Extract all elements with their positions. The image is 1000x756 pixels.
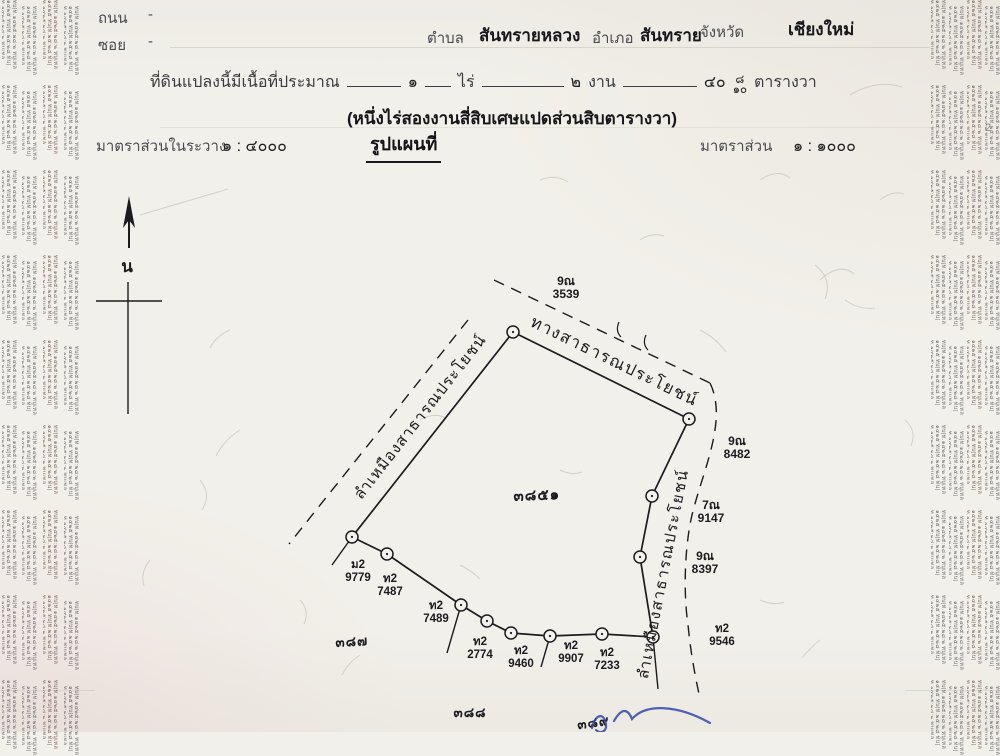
security-microtext-block: ทบ|ท.๑๔๒๕:๒๘:๒ ทบูเทล ๑๔๒๕ ทบ|ท.๒๕:๒๘ ทบ…	[949, 516, 964, 586]
security-microtext-block: ทบ|ท.๑๔๒๕:๒๘:๒ ทบูเทล ๑๔๒๕ ทบ|ท.๒๕:๒๘ ทบ…	[64, 176, 79, 246]
security-microtext-block: ทบ|ท.๑๔๒๕:๒๘:๒ ทบูเทล ๑๔๒๕ ทบ|ท.๒๕:๒๘ ทบ…	[931, 170, 946, 240]
survey-point-number: 7489	[423, 613, 449, 625]
boundary-spur	[447, 605, 461, 653]
neighbor-point-code: 7ณ	[702, 498, 720, 512]
security-microtext-block: ทบ|ท.๑๔๒๕:๒๘:๒ ทบูเทล ๑๔๒๕ ทบ|ท.๒๕:๒๘ ทบ…	[985, 516, 1000, 586]
neighbor-point-number: 8397	[692, 562, 719, 576]
security-microtext-block: ทบ|ท.๑๔๒๕:๒๘:๒ ทบูเทล ๑๔๒๕ ทบ|ท.๒๕:๒๘ ทบ…	[967, 595, 982, 665]
survey-marker	[647, 631, 659, 643]
survey-marker-dot	[651, 495, 653, 497]
security-microtext-block: ทบ|ท.๑๔๒๕:๒๘:๒ ทบูเทล ๑๔๒๕ ทบ|ท.๒๕:๒๘ ทบ…	[949, 431, 964, 501]
scan-noise	[420, 415, 446, 420]
survey-point-code: ท2	[600, 647, 614, 659]
survey-point-code: ท2	[715, 623, 729, 635]
security-microtext-block: ทบ|ท.๑๔๒๕:๒๘:๒ ทบูเทล ๑๔๒๕ ทบ|ท.๒๕:๒๘ ทบ…	[64, 346, 79, 416]
security-microtext-block: ทบ|ท.๑๔๒๕:๒๘:๒ ทบูเทล ๑๔๒๕ ทบ|ท.๒๕:๒๘ ทบ…	[967, 425, 982, 495]
security-microtext-block: ทบ|ท.๑๔๒๕:๒๘:๒ ทบูเทล ๑๔๒๕ ทบ|ท.๒๕:๒๘ ทบ…	[931, 510, 946, 580]
pen-mark	[592, 716, 606, 732]
sheet-scale-label: มาตราส่วนในระวาง	[96, 134, 226, 158]
scan-noise	[216, 430, 240, 456]
security-microtext-block: ทบ|ท.๑๔๒๕:๒๘:๒ ทบูเทล ๑๔๒๕ ทบ|ท.๒๕:๒๘ ทบ…	[949, 6, 964, 76]
survey-point-number: 9779	[345, 572, 371, 584]
scan-noise	[560, 470, 582, 474]
road-value: -	[148, 6, 153, 23]
dashed-boundary	[494, 280, 710, 383]
map-title: รูปแผนที่	[366, 129, 441, 163]
neighbor-parcel-number: ๓๘๗	[335, 633, 369, 650]
security-microtext-block: ทบ|ท.๑๔๒๕:๒๘:๒ ทบูเทล ๑๔๒๕ ทบ|ท.๒๕:๒๘ ทบ…	[967, 170, 982, 240]
street-name-label: ลำเหมืองสาธารณประโยชน์	[350, 331, 490, 503]
neighbor-parcel-number: ๓๘๘	[453, 705, 486, 720]
security-microtext-block: ทบ|ท.๑๔๒๕:๒๘:๒ ทบูเทล ๑๔๒๕ ทบ|ท.๒๕:๒๘ ทบ…	[967, 255, 982, 325]
security-microtext-column: ทบ|ท.๑๔๒๕:๒๘:๒ ทบูเทล ๑๔๒๕ ทบ|ท.๒๕:๒๘ ทบ…	[2, 0, 17, 750]
area-dash	[623, 86, 697, 87]
security-microtext-block: ทบ|ท.๑๔๒๕:๒๘:๒ ทบูเทล ๑๔๒๕ ทบ|ท.๒๕:๒๘ ทบ…	[967, 340, 982, 410]
security-microtext-block: ทบ|ท.๑๔๒๕:๒๘:๒ ทบูเทล ๑๔๒๕ ทบ|ท.๒๕:๒๘ ทบ…	[931, 595, 946, 665]
security-microtext-block: ทบ|ท.๑๔๒๕:๒๘:๒ ทบูเทล ๑๔๒๕ ทบ|ท.๒๕:๒๘ ทบ…	[22, 6, 37, 76]
neighbor-point-code: 9ณ	[696, 549, 714, 563]
boundary-spur	[653, 637, 658, 689]
area-ngan: ๒	[571, 70, 582, 95]
scan-noise	[760, 600, 784, 604]
security-microtext-column: ทบ|ท.๑๔๒๕:๒๘:๒ ทบูเทล ๑๔๒๕ ทบ|ท.๒๕:๒๘ ทบ…	[64, 6, 79, 756]
security-microtext-block: ทบ|ท.๑๔๒๕:๒๘:๒ ทบูเทล ๑๔๒๕ ทบ|ท.๒๕:๒๘ ทบ…	[2, 170, 17, 240]
survey-marker-dot	[688, 418, 690, 420]
boundary-tick	[617, 322, 621, 337]
dashed-boundary	[685, 383, 716, 694]
security-microtext-block: ทบ|ท.๑๔๒๕:๒๘:๒ ทบูเทล ๑๔๒๕ ทบ|ท.๒๕:๒๘ ทบ…	[43, 85, 58, 155]
tambon-value: สันทรายหลวง	[479, 22, 580, 49]
scan-noise	[640, 235, 664, 240]
survey-marker	[683, 413, 695, 425]
survey-marker	[346, 531, 358, 543]
security-microtext-block: ทบ|ท.๑๔๒๕:๒๘:๒ ทบูเทล ๑๔๒๕ ทบ|ท.๒๕:๒๘ ทบ…	[2, 340, 17, 410]
tambon-label: ตำบล	[427, 26, 464, 50]
north-arrow-head	[123, 196, 135, 228]
neighbor-point-code: 9ณ	[728, 434, 746, 448]
survey-point-number: 9907	[558, 653, 584, 665]
security-microtext-block: ทบ|ท.๑๔๒๕:๒๘:๒ ทบูเทล ๑๔๒๕ ทบ|ท.๒๕:๒๘ ทบ…	[22, 176, 37, 246]
security-microtext-column: ทบ|ท.๑๔๒๕:๒๘:๒ ทบูเทล ๑๔๒๕ ทบ|ท.๒๕:๒๘ ทบ…	[931, 0, 946, 750]
dashed-boundary	[289, 320, 468, 544]
scan-noise	[140, 189, 228, 215]
parcel-number: ๓๘๕๑	[513, 486, 560, 505]
area-rai: ๑	[408, 70, 418, 95]
security-microtext-block: ทบ|ท.๑๔๒๕:๒๘:๒ ทบูเทล ๑๔๒๕ ทบ|ท.๒๕:๒๘ ทบ…	[43, 595, 58, 665]
area-wa: ๔๐	[704, 70, 726, 95]
neighbor-point-number: 3539	[553, 287, 580, 301]
survey-point-number: 2774	[467, 649, 493, 661]
road-label: ถนน	[98, 6, 128, 30]
soi-value: -	[148, 33, 153, 50]
scan-noise	[850, 84, 902, 95]
survey-marker-dot	[510, 632, 512, 634]
survey-marker	[505, 627, 517, 639]
survey-point-code: ท2	[383, 573, 397, 585]
security-microtext-block: ทบ|ท.๑๔๒๕:๒๘:๒ ทบูเทล ๑๔๒๕ ทบ|ท.๒๕:๒๘ ทบ…	[22, 686, 37, 756]
scan-noise	[700, 330, 726, 352]
survey-point-code: ท2	[514, 645, 528, 657]
security-microtext-block: ทบ|ท.๑๔๒๕:๒๘:๒ ทบูเทล ๑๔๒๕ ทบ|ท.๒๕:๒๘ ทบ…	[949, 686, 964, 756]
survey-point-number: 7233	[594, 660, 620, 672]
security-microtext-block: ทบ|ท.๑๔๒๕:๒๘:๒ ทบูเทล ๑๔๒๕ ทบ|ท.๒๕:๒๘ ทบ…	[2, 510, 17, 580]
survey-marker-dot	[549, 635, 551, 637]
survey-marker-dot	[639, 556, 641, 558]
survey-marker	[646, 490, 658, 502]
security-microtext-block: ทบ|ท.๑๔๒๕:๒๘:๒ ทบูเทล ๑๔๒๕ ทบ|ท.๒๕:๒๘ ทบ…	[2, 0, 17, 70]
security-microtext-block: ทบ|ท.๑๔๒๕:๒๘:๒ ทบูเทล ๑๔๒๕ ทบ|ท.๒๕:๒๘ ทบ…	[985, 261, 1000, 331]
security-microtext-block: ทบ|ท.๑๔๒๕:๒๘:๒ ทบูเทล ๑๔๒๕ ทบ|ท.๒๕:๒๘ ทบ…	[22, 601, 37, 671]
scan-noise	[342, 655, 360, 675]
rai-label: ไร่	[458, 70, 475, 95]
survey-marker-dot	[512, 331, 514, 333]
security-microtext-block: ทบ|ท.๑๔๒๕:๒๘:๒ ทบูเทล ๑๔๒๕ ทบ|ท.๒๕:๒๘ ทบ…	[43, 425, 58, 495]
security-microtext-block: ทบ|ท.๑๔๒๕:๒๘:๒ ทบูเทล ๑๔๒๕ ทบ|ท.๒๕:๒๘ ทบ…	[2, 595, 17, 665]
pen-mark	[614, 708, 710, 723]
survey-marker-dot	[386, 553, 388, 555]
survey-point-number: 9460	[508, 658, 534, 670]
scan-noise	[540, 177, 568, 182]
security-microtext-block: ทบ|ท.๑๔๒๕:๒๘:๒ ทบูเทล ๑๔๒๕ ทบ|ท.๒๕:๒๘ ทบ…	[2, 680, 17, 750]
security-microtext-block: ทบ|ท.๑๔๒๕:๒๘:๒ ทบูเทล ๑๔๒๕ ทบ|ท.๒๕:๒๘ ทบ…	[22, 431, 37, 501]
security-microtext-block: ทบ|ท.๑๔๒๕:๒๘:๒ ทบูเทล ๑๔๒๕ ทบ|ท.๒๕:๒๘ ทบ…	[931, 425, 946, 495]
street-name-label: ลำเหมืองสาธารณประโยชน์	[634, 468, 692, 681]
wa-label: ตารางวา	[754, 70, 817, 95]
security-microtext-column: ทบ|ท.๑๔๒๕:๒๘:๒ ทบูเทล ๑๔๒๕ ทบ|ท.๒๕:๒๘ ทบ…	[949, 6, 964, 756]
survey-marker-dot	[652, 636, 654, 638]
area-dash	[347, 86, 401, 87]
survey-marker	[507, 326, 519, 338]
sheet-scale-value: ๑ : ๔๐๐๐	[222, 134, 287, 159]
security-microtext-block: ทบ|ท.๑๔๒๕:๒๘:๒ ทบูเทล ๑๔๒๕ ทบ|ท.๒๕:๒๘ ทบ…	[931, 255, 946, 325]
page-mark: 2	[985, 122, 991, 134]
soi-label: ซอย	[98, 33, 126, 57]
security-microtext-block: ทบ|ท.๑๔๒๕:๒๘:๒ ทบูเทล ๑๔๒๕ ทบ|ท.๒๕:๒๘ ทบ…	[949, 601, 964, 671]
area-dash	[425, 86, 451, 87]
security-microtext-block: ทบ|ท.๑๔๒๕:๒๘:๒ ทบูเทล ๑๔๒๕ ทบ|ท.๒๕:๒๘ ทบ…	[64, 261, 79, 331]
area-prefix: ที่ดินแปลงนี้มีเนื้อที่ประมาณ	[150, 70, 340, 95]
survey-point-code: ม2	[351, 559, 365, 571]
neighbor-point-code: 9ณ	[557, 274, 575, 288]
parcel-boundary	[352, 332, 689, 637]
province-label: จังหวัด	[700, 20, 744, 44]
security-microtext-block: ทบ|ท.๑๔๒๕:๒๘:๒ ทบูเทล ๑๔๒๕ ทบ|ท.๒๕:๒๘ ทบ…	[2, 85, 17, 155]
area-line: ที่ดินแปลงนี้มีเนื้อที่ประมาณ ๑ ไร่ ๒ งา…	[150, 70, 817, 99]
scan-noise	[760, 173, 790, 180]
province-value: เชียงใหม่	[788, 16, 854, 43]
security-microtext-block: ทบ|ท.๑๔๒๕:๒๘:๒ ทบูเทล ๑๔๒๕ ทบ|ท.๒๕:๒๘ ทบ…	[43, 510, 58, 580]
scan-noise	[210, 330, 230, 348]
security-microtext-block: ทบ|ท.๑๔๒๕:๒๘:๒ ทบูเทล ๑๔๒๕ ทบ|ท.๒๕:๒๘ ทบ…	[949, 261, 964, 331]
amphoe-label: อำเภอ	[592, 26, 633, 50]
area-wa-fraction: ๘ ๑๐	[733, 75, 747, 95]
survey-point-number: 7487	[377, 586, 403, 598]
neighbor-parcel-number: ๓๘๙	[576, 713, 610, 732]
security-microtext-block: ทบ|ท.๑๔๒๕:๒๘:๒ ทบูเทล ๑๔๒๕ ทบ|ท.๒๕:๒๘ ทบ…	[931, 340, 946, 410]
security-microtext-block: ทบ|ท.๑๔๒๕:๒๘:๒ ทบูเทล ๑๔๒๕ ทบ|ท.๒๕:๒๘ ทบ…	[64, 601, 79, 671]
security-microtext-block: ทบ|ท.๑๔๒๕:๒๘:๒ ทบูเทล ๑๔๒๕ ทบ|ท.๒๕:๒๘ ทบ…	[64, 6, 79, 76]
security-microtext-block: ทบ|ท.๑๔๒๕:๒๘:๒ ทบูเทล ๑๔๒๕ ทบ|ท.๒๕:๒๘ ทบ…	[2, 255, 17, 325]
survey-marker	[596, 628, 608, 640]
security-microtext-block: ทบ|ท.๑๔๒๕:๒๘:๒ ทบูเทล ๑๔๒๕ ทบ|ท.๒๕:๒๘ ทบ…	[64, 516, 79, 586]
security-microtext-block: ทบ|ท.๑๔๒๕:๒๘:๒ ทบูเทล ๑๔๒๕ ทบ|ท.๒๕:๒๘ ทบ…	[985, 431, 1000, 501]
security-microtext-block: ทบ|ท.๑๔๒๕:๒๘:๒ ทบูเทล ๑๔๒๕ ทบ|ท.๒๕:๒๘ ทบ…	[2, 425, 17, 495]
street-name-label: ทางสาธารณประโยชน์	[527, 312, 701, 410]
security-microtext-block: ทบ|ท.๑๔๒๕:๒๘:๒ ทบูเทล ๑๔๒๕ ทบ|ท.๒๕:๒๘ ทบ…	[43, 255, 58, 325]
security-microtext-block: ทบ|ท.๑๔๒๕:๒๘:๒ ทบูเทล ๑๔๒๕ ทบ|ท.๒๕:๒๘ ทบ…	[949, 346, 964, 416]
scan-noise	[815, 265, 827, 299]
security-microtext-block: ทบ|ท.๑๔๒๕:๒๘:๒ ทบูเทล ๑๔๒๕ ทบ|ท.๒๕:๒๘ ทบ…	[967, 680, 982, 750]
security-microtext-column: ทบ|ท.๑๔๒๕:๒๘:๒ ทบูเทล ๑๔๒๕ ทบ|ท.๒๕:๒๘ ทบ…	[985, 6, 1000, 756]
security-microtext-block: ทบ|ท.๑๔๒๕:๒๘:๒ ทบูเทล ๑๔๒๕ ทบ|ท.๒๕:๒๘ ทบ…	[64, 686, 79, 756]
scan-noise	[802, 640, 820, 658]
security-microtext-block: ทบ|ท.๑๔๒๕:๒๘:๒ ทบูเทล ๑๔๒๕ ทบ|ท.๒๕:๒๘ ทบ…	[64, 431, 79, 501]
scan-noise	[143, 560, 150, 586]
security-microtext-block: ทบ|ท.๑๔๒๕:๒๘:๒ ทบูเทล ๑๔๒๕ ทบ|ท.๒๕:๒๘ ทบ…	[22, 516, 37, 586]
map-scale-value: ๑ : ๑๐๐๐	[793, 134, 856, 159]
security-microtext-block: ทบ|ท.๑๔๒๕:๒๘:๒ ทบูเทล ๑๔๒๕ ทบ|ท.๒๕:๒๘ ทบ…	[949, 91, 964, 161]
survey-marker	[481, 615, 493, 627]
survey-marker	[381, 548, 393, 560]
scan-noise	[905, 420, 913, 446]
area-dash	[482, 86, 564, 87]
neighbor-point-number: 8482	[724, 447, 751, 461]
security-microtext-block: ทบ|ท.๑๔๒๕:๒๘:๒ ทบูเทล ๑๔๒๕ ทบ|ท.๒๕:๒๘ ทบ…	[967, 510, 982, 580]
security-microtext-column: ทบ|ท.๑๔๒๕:๒๘:๒ ทบูเทล ๑๔๒๕ ทบ|ท.๒๕:๒๘ ทบ…	[22, 6, 37, 756]
security-microtext-block: ทบ|ท.๑๔๒๕:๒๘:๒ ทบูเทล ๑๔๒๕ ทบ|ท.๒๕:๒๘ ทบ…	[985, 601, 1000, 671]
survey-marker	[544, 630, 556, 642]
security-microtext-block: ทบ|ท.๑๔๒๕:๒๘:๒ ทบูเทล ๑๔๒๕ ทบ|ท.๒๕:๒๘ ทบ…	[985, 176, 1000, 246]
security-microtext-block: ทบ|ท.๑๔๒๕:๒๘:๒ ทบูเทล ๑๔๒๕ ทบ|ท.๒๕:๒๘ ทบ…	[967, 85, 982, 155]
boundary-spur	[332, 537, 352, 565]
survey-marker-dot	[601, 633, 603, 635]
area-in-words: (หนึ่งไร่สองงานสี่สิบเศษแปดส่วนสิบตารางว…	[347, 105, 677, 132]
security-microtext-column: ทบ|ท.๑๔๒๕:๒๘:๒ ทบูเทล ๑๔๒๕ ทบ|ท.๒๕:๒๘ ทบ…	[43, 0, 58, 750]
security-microtext-block: ทบ|ท.๑๔๒๕:๒๘:๒ ทบูเทล ๑๔๒๕ ทบ|ท.๒๕:๒๘ ทบ…	[22, 91, 37, 161]
survey-point-number: 9546	[709, 636, 735, 648]
security-microtext-block: ทบ|ท.๑๔๒๕:๒๘:๒ ทบูเทล ๑๔๒๕ ทบ|ท.๒๕:๒๘ ทบ…	[43, 680, 58, 750]
boundary-tick	[644, 335, 648, 350]
security-microtext-block: ทบ|ท.๑๔๒๕:๒๘:๒ ทบูเทล ๑๔๒๕ ทบ|ท.๒๕:๒๘ ทบ…	[967, 0, 982, 70]
security-microtext-block: ทบ|ท.๑๔๒๕:๒๘:๒ ทบูเทล ๑๔๒๕ ทบ|ท.๒๕:๒๘ ทบ…	[949, 176, 964, 246]
ngan-label: งาน	[588, 70, 616, 95]
scan-noise	[845, 300, 875, 308]
survey-marker-dot	[460, 604, 462, 606]
security-microtext-block: ทบ|ท.๑๔๒๕:๒๘:๒ ทบูเทล ๑๔๒๕ ทบ|ท.๒๕:๒๘ ทบ…	[931, 680, 946, 750]
survey-point-code: ท2	[564, 640, 578, 652]
survey-marker	[455, 599, 467, 611]
security-microtext-block: ทบ|ท.๑๔๒๕:๒๘:๒ ทบูเทล ๑๔๒๕ ทบ|ท.๒๕:๒๘ ทบ…	[22, 261, 37, 331]
wa-frac-bottom: ๑๐	[733, 85, 747, 95]
survey-marker-dot	[486, 620, 488, 622]
scan-noise	[460, 565, 480, 579]
security-microtext-block: ทบ|ท.๑๔๒๕:๒๘:๒ ทบูเทล ๑๔๒๕ ทบ|ท.๒๕:๒๘ ทบ…	[43, 170, 58, 240]
survey-point-code: ท2	[429, 600, 443, 612]
scan-noise	[880, 193, 904, 200]
neighbor-point-number: 9147	[698, 511, 725, 525]
scan-noise	[200, 480, 207, 510]
security-microtext-block: ทบ|ท.๑๔๒๕:๒๘:๒ ทบูเทล ๑๔๒๕ ทบ|ท.๒๕:๒๘ ทบ…	[43, 340, 58, 410]
amphoe-value: สันทราย	[640, 22, 702, 49]
security-microtext-block: ทบ|ท.๑๔๒๕:๒๘:๒ ทบูเทล ๑๔๒๕ ทบ|ท.๒๕:๒๘ ทบ…	[985, 686, 1000, 756]
security-microtext-block: ทบ|ท.๑๔๒๕:๒๘:๒ ทบูเทล ๑๔๒๕ ทบ|ท.๒๕:๒๘ ทบ…	[985, 6, 1000, 76]
survey-marker-dot	[351, 536, 353, 538]
boundary-spur	[541, 636, 550, 667]
security-microtext-block: ทบ|ท.๑๔๒๕:๒๘:๒ ทบูเทล ๑๔๒๕ ทบ|ท.๒๕:๒๘ ทบ…	[43, 0, 58, 70]
security-microtext-block: ทบ|ท.๑๔๒๕:๒๘:๒ ทบูเทล ๑๔๒๕ ทบ|ท.๒๕:๒๘ ทบ…	[985, 346, 1000, 416]
survey-marker	[634, 551, 646, 563]
scan-noise	[820, 269, 854, 280]
map-scale-label: มาตราส่วน	[700, 134, 772, 158]
security-microtext-block: ทบ|ท.๑๔๒๕:๒๘:๒ ทบูเทล ๑๔๒๕ ทบ|ท.๒๕:๒๘ ทบ…	[931, 85, 946, 155]
north-label: น	[121, 257, 133, 276]
scan-noise	[300, 600, 306, 624]
security-microtext-block: ทบ|ท.๑๔๒๕:๒๘:๒ ทบูเทล ๑๔๒๕ ทบ|ท.๒๕:๒๘ ทบ…	[931, 0, 946, 70]
survey-point-code: ท2	[473, 636, 487, 648]
security-microtext-block: ทบ|ท.๑๔๒๕:๒๘:๒ ทบูเทล ๑๔๒๕ ทบ|ท.๒๕:๒๘ ทบ…	[22, 346, 37, 416]
security-microtext-column: ทบ|ท.๑๔๒๕:๒๘:๒ ทบูเทล ๑๔๒๕ ทบ|ท.๒๕:๒๘ ทบ…	[967, 0, 982, 750]
security-microtext-block: ทบ|ท.๑๔๒๕:๒๘:๒ ทบูเทล ๑๔๒๕ ทบ|ท.๒๕:๒๘ ทบ…	[64, 91, 79, 161]
